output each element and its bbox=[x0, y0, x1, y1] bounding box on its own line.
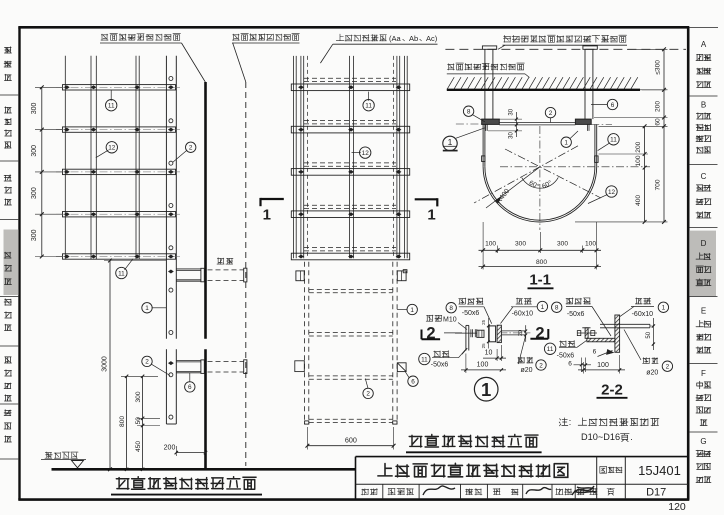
svg-text:2: 2 bbox=[145, 359, 149, 366]
svg-text:Ab: Ab bbox=[409, 34, 418, 43]
svg-text:ø20: ø20 bbox=[520, 367, 532, 374]
svg-text:2: 2 bbox=[539, 362, 543, 369]
svg-text:300: 300 bbox=[31, 145, 38, 157]
svg-text:1: 1 bbox=[410, 307, 414, 314]
svg-text:200: 200 bbox=[635, 141, 642, 152]
svg-text:11: 11 bbox=[365, 103, 372, 110]
svg-text:3000: 3000 bbox=[102, 356, 109, 372]
svg-text:400: 400 bbox=[635, 195, 642, 206]
svg-text:300: 300 bbox=[557, 240, 568, 247]
svg-text:100: 100 bbox=[477, 361, 489, 368]
svg-text:8: 8 bbox=[555, 305, 559, 312]
svg-text:2-2: 2-2 bbox=[601, 382, 623, 399]
svg-text::: : bbox=[569, 417, 572, 427]
svg-text:(Aa: (Aa bbox=[389, 34, 402, 43]
svg-text:1: 1 bbox=[448, 137, 453, 147]
svg-text:1: 1 bbox=[145, 305, 149, 312]
svg-text:1: 1 bbox=[662, 305, 666, 312]
svg-text:6: 6 bbox=[593, 349, 597, 356]
svg-text:1: 1 bbox=[541, 304, 545, 311]
svg-text:300: 300 bbox=[31, 187, 38, 199]
svg-text:Ac): Ac) bbox=[426, 34, 438, 43]
svg-text:12: 12 bbox=[608, 189, 616, 196]
svg-text:800: 800 bbox=[536, 259, 547, 266]
svg-text:11: 11 bbox=[547, 346, 554, 353]
svg-text:300: 300 bbox=[515, 240, 526, 247]
svg-text:2: 2 bbox=[535, 325, 544, 343]
svg-text:1: 1 bbox=[427, 207, 435, 224]
svg-text:A: A bbox=[701, 40, 707, 49]
svg-text:1: 1 bbox=[564, 140, 568, 147]
svg-text:25: 25 bbox=[481, 343, 486, 349]
svg-text:B: B bbox=[701, 101, 706, 110]
svg-text:.: . bbox=[630, 432, 633, 442]
svg-text:100: 100 bbox=[585, 240, 596, 247]
svg-text:-50x6: -50x6 bbox=[557, 352, 575, 359]
svg-text:1-1: 1-1 bbox=[529, 271, 551, 288]
svg-text:D17: D17 bbox=[646, 486, 666, 498]
svg-text:2: 2 bbox=[666, 364, 670, 371]
svg-text:450: 450 bbox=[135, 441, 142, 452]
svg-text:≤300: ≤300 bbox=[654, 60, 661, 75]
svg-text:C: C bbox=[701, 172, 707, 181]
svg-text:-50x6: -50x6 bbox=[462, 310, 480, 317]
svg-text:300: 300 bbox=[31, 229, 38, 241]
svg-text:D: D bbox=[701, 239, 707, 248]
svg-text:-60x10: -60x10 bbox=[512, 310, 534, 317]
svg-text:8: 8 bbox=[467, 109, 471, 116]
svg-text:12: 12 bbox=[362, 150, 370, 157]
svg-text:6: 6 bbox=[568, 360, 572, 367]
svg-text:-60x10: -60x10 bbox=[632, 311, 654, 318]
svg-text:G: G bbox=[700, 437, 706, 446]
svg-text:200: 200 bbox=[654, 101, 661, 112]
svg-text:12: 12 bbox=[108, 145, 116, 152]
svg-text:2: 2 bbox=[549, 110, 553, 117]
svg-text:200: 200 bbox=[164, 445, 176, 452]
svg-text:100: 100 bbox=[485, 240, 496, 247]
svg-text:25: 25 bbox=[481, 319, 486, 325]
svg-text:8: 8 bbox=[449, 305, 453, 312]
svg-text:6: 6 bbox=[611, 102, 615, 109]
svg-text:M10: M10 bbox=[443, 316, 457, 323]
svg-text:20: 20 bbox=[518, 330, 524, 336]
svg-text:800: 800 bbox=[119, 416, 126, 427]
svg-text:600: 600 bbox=[345, 435, 357, 444]
svg-text:E: E bbox=[701, 307, 706, 316]
svg-text:F: F bbox=[701, 369, 706, 378]
svg-text:120: 120 bbox=[668, 501, 686, 513]
svg-text:1: 1 bbox=[263, 206, 271, 223]
svg-text:ø20: ø20 bbox=[646, 369, 658, 376]
svg-text:D10~D16: D10~D16 bbox=[581, 432, 620, 442]
svg-text:6: 6 bbox=[411, 379, 415, 386]
svg-text:11: 11 bbox=[610, 137, 617, 144]
svg-text:10: 10 bbox=[485, 349, 493, 356]
svg-text:11: 11 bbox=[108, 103, 115, 110]
svg-text:700: 700 bbox=[654, 179, 661, 190]
svg-text:11: 11 bbox=[118, 270, 125, 277]
svg-text:30: 30 bbox=[508, 108, 514, 115]
svg-text:11: 11 bbox=[421, 356, 428, 363]
svg-text:15J401: 15J401 bbox=[638, 463, 681, 478]
svg-text:2: 2 bbox=[366, 391, 370, 398]
svg-text:300: 300 bbox=[31, 102, 38, 114]
svg-text:300: 300 bbox=[135, 391, 142, 402]
svg-text:6: 6 bbox=[188, 384, 192, 391]
svg-text:100: 100 bbox=[597, 362, 609, 369]
svg-text:50: 50 bbox=[135, 417, 142, 425]
svg-text:60: 60 bbox=[654, 118, 661, 126]
svg-text:-50x6: -50x6 bbox=[431, 361, 449, 368]
svg-text:100: 100 bbox=[635, 155, 642, 166]
svg-text:50: 50 bbox=[646, 331, 652, 338]
svg-text:-50x6: -50x6 bbox=[567, 311, 585, 318]
svg-text:30: 30 bbox=[508, 132, 514, 139]
svg-text:1: 1 bbox=[481, 379, 491, 400]
svg-text:2: 2 bbox=[189, 145, 193, 152]
